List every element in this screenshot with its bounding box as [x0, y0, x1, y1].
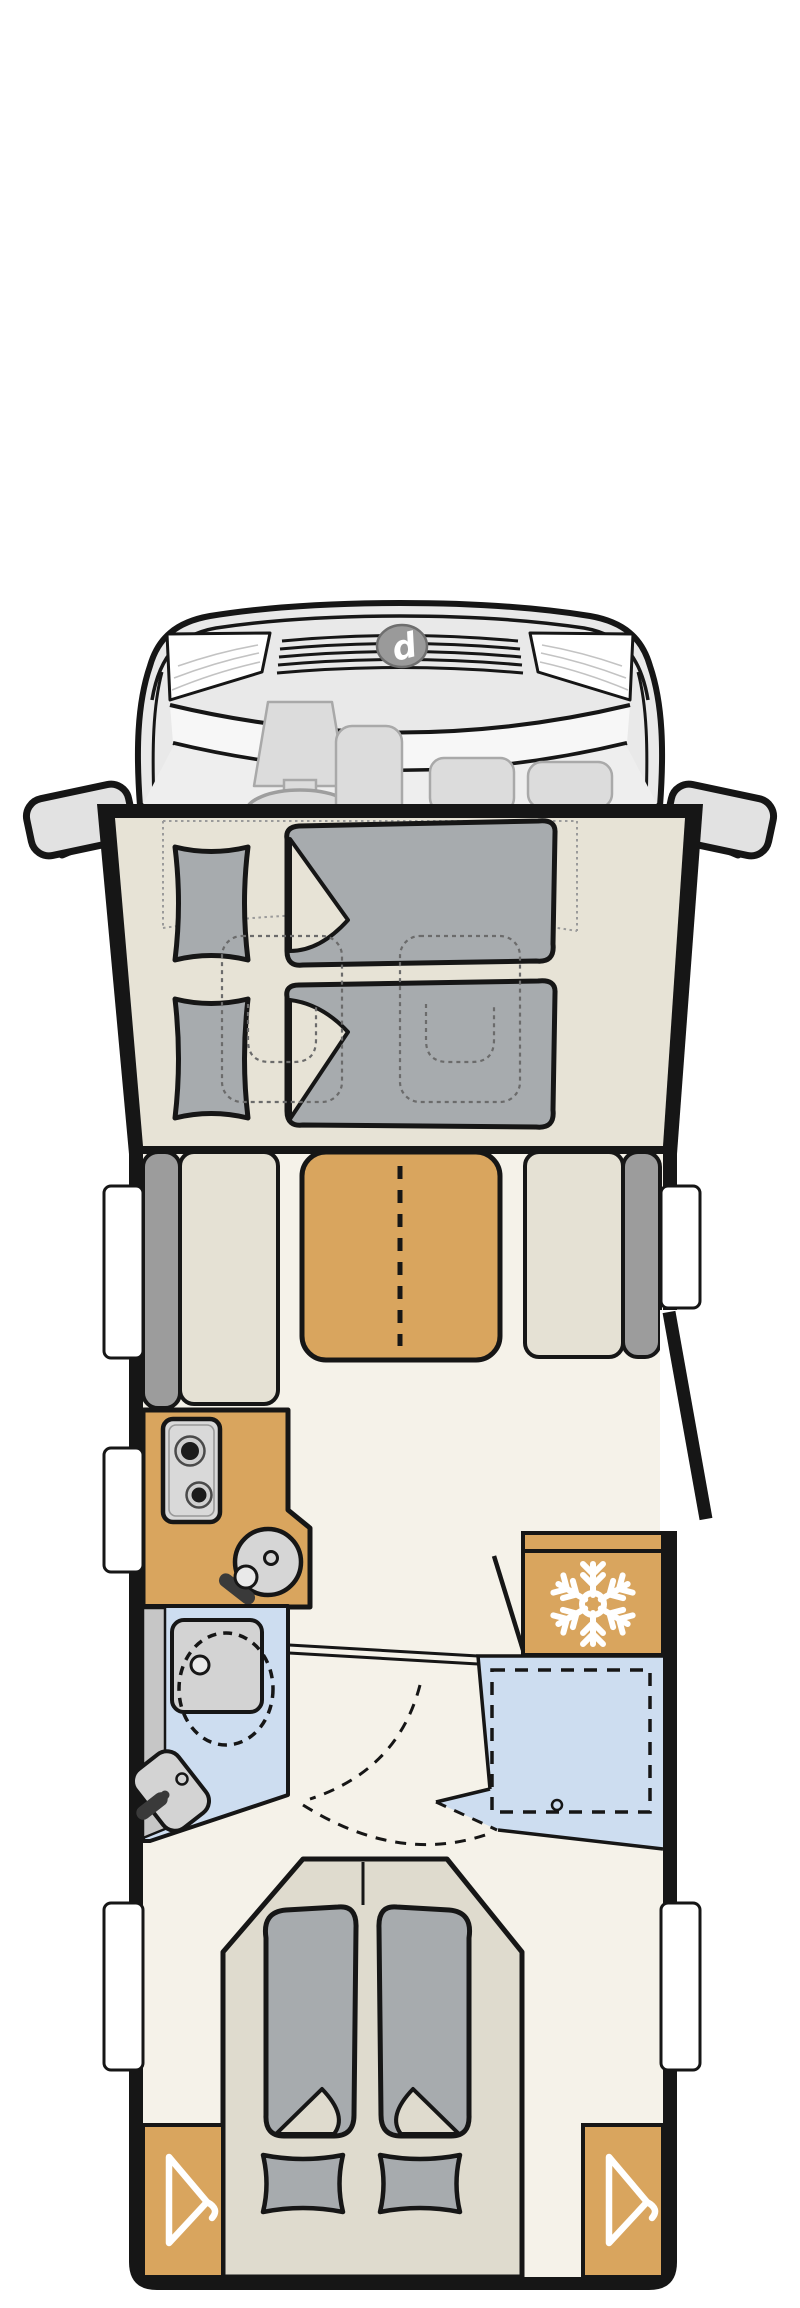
front-pillow-2 — [175, 999, 248, 1118]
rear-pillow-right — [380, 2155, 460, 2212]
dinette-table — [302, 1152, 500, 1360]
kitchen — [143, 1410, 310, 1607]
window-right-rear — [661, 1903, 700, 2070]
front-pillow-1 — [175, 847, 248, 960]
window-right-dinette — [661, 1186, 700, 1308]
window-left-kitchen — [104, 1448, 143, 1572]
cab: d — [138, 603, 662, 834]
rear-bed — [223, 1859, 522, 2277]
entry-door — [660, 1310, 706, 1531]
right-bench-cushion — [525, 1152, 623, 1357]
fridge-top-strip — [523, 1533, 663, 1551]
stove-icon — [163, 1419, 220, 1522]
floor-plan-image: Motorhome floor plan (top view) — [0, 0, 800, 2308]
left-bench-backrest — [143, 1152, 180, 1408]
window-left-rear — [104, 1903, 143, 2070]
passenger-seat — [430, 758, 514, 812]
passenger-seat-2 — [528, 762, 612, 808]
window-left-dinette — [104, 1186, 143, 1358]
left-bench-cushion — [180, 1152, 278, 1404]
front-bed-section — [97, 804, 703, 1154]
right-bench-backrest — [623, 1152, 660, 1357]
rear-pillow-left — [263, 2155, 343, 2212]
